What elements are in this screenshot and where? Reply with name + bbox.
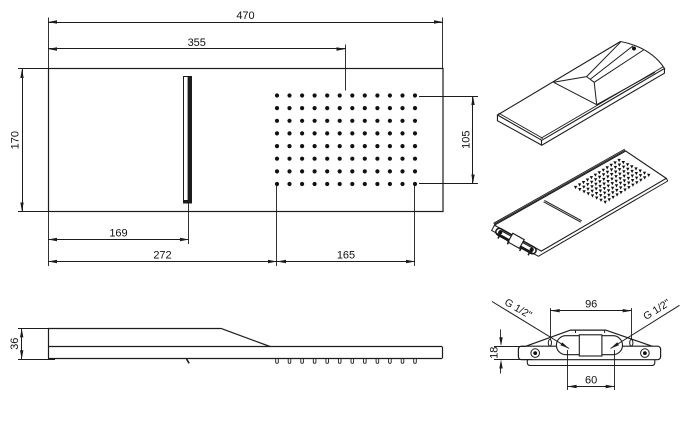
svg-text:470: 470 — [236, 10, 254, 22]
svg-text:165: 165 — [337, 249, 355, 261]
svg-text:272: 272 — [153, 249, 171, 261]
svg-text:169: 169 — [109, 227, 127, 239]
svg-text:105: 105 — [461, 131, 473, 149]
svg-text:355: 355 — [188, 37, 206, 49]
svg-text:96: 96 — [585, 299, 597, 311]
svg-text:18: 18 — [489, 347, 501, 359]
svg-text:60: 60 — [585, 374, 597, 386]
svg-text:36: 36 — [9, 338, 21, 350]
svg-text:170: 170 — [10, 131, 22, 149]
